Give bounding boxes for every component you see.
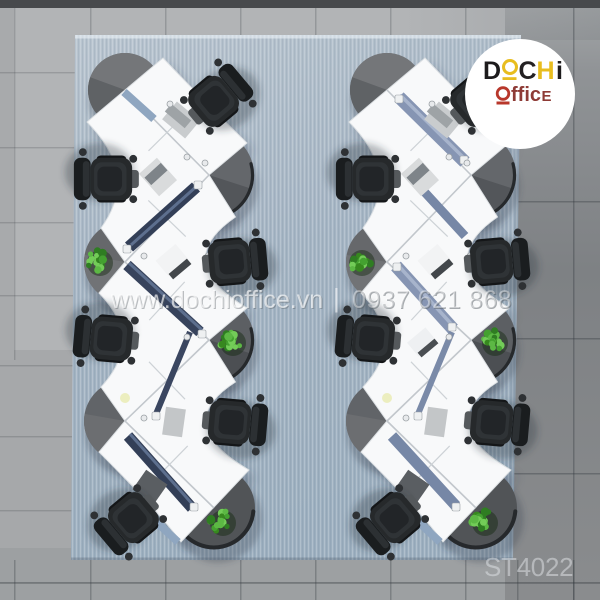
svg-text:H: H: [537, 57, 555, 85]
svg-text:E: E: [542, 88, 552, 105]
svg-text:i: i: [556, 57, 563, 85]
svg-text:D: D: [483, 57, 501, 85]
svg-text:|: |: [333, 283, 340, 313]
svg-text:ST4022: ST4022: [484, 552, 573, 582]
svg-text:0937 621 868: 0937 621 868: [352, 286, 512, 314]
svg-text:www.dochioffice.vn: www.dochioffice.vn: [110, 286, 323, 314]
svg-text:ffic: ffic: [511, 84, 541, 106]
svg-text:C: C: [519, 57, 537, 85]
